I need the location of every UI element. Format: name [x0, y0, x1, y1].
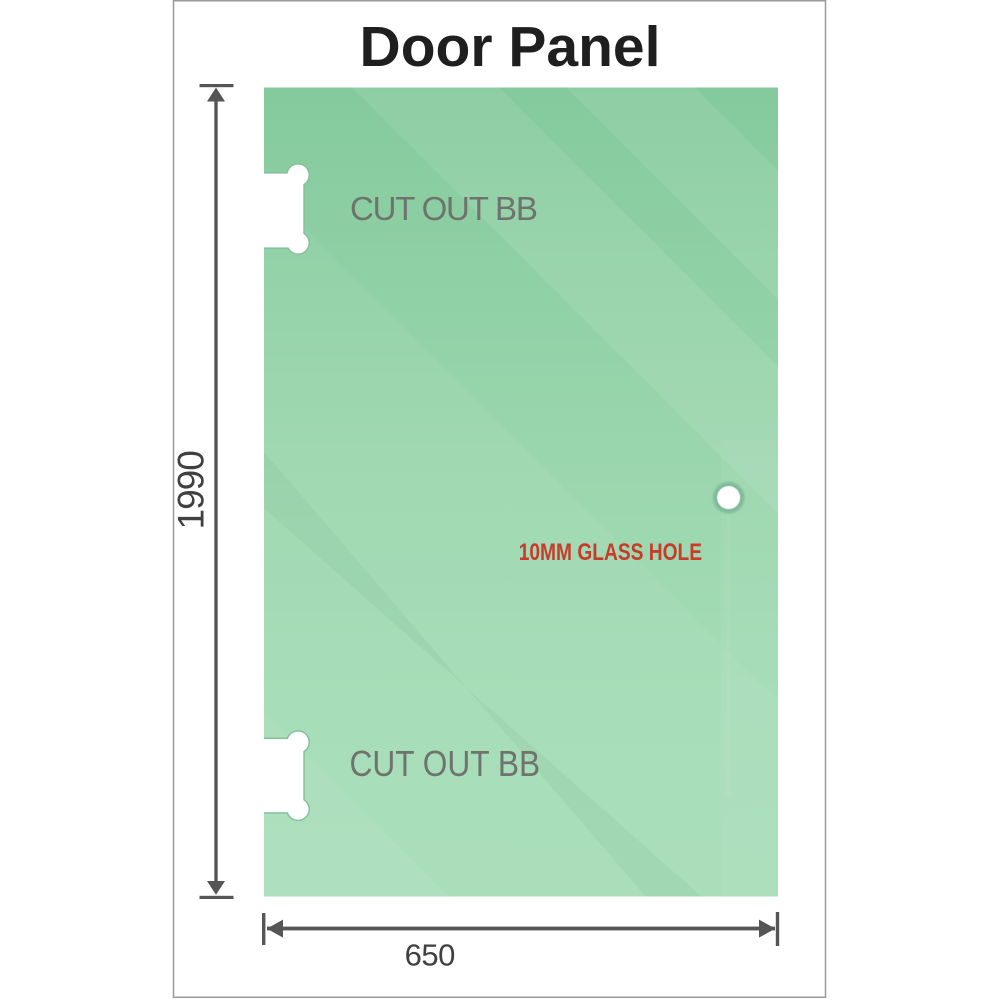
svg-text:650: 650: [405, 937, 455, 972]
svg-text:CUT OUT BB: CUT OUT BB: [350, 190, 537, 227]
svg-text:10MM GLASS HOLE: 10MM GLASS HOLE: [519, 538, 702, 566]
svg-text:1990: 1990: [171, 451, 212, 530]
svg-text:Door Panel: Door Panel: [360, 15, 661, 79]
svg-text:CUT OUT BB: CUT OUT BB: [350, 744, 541, 785]
